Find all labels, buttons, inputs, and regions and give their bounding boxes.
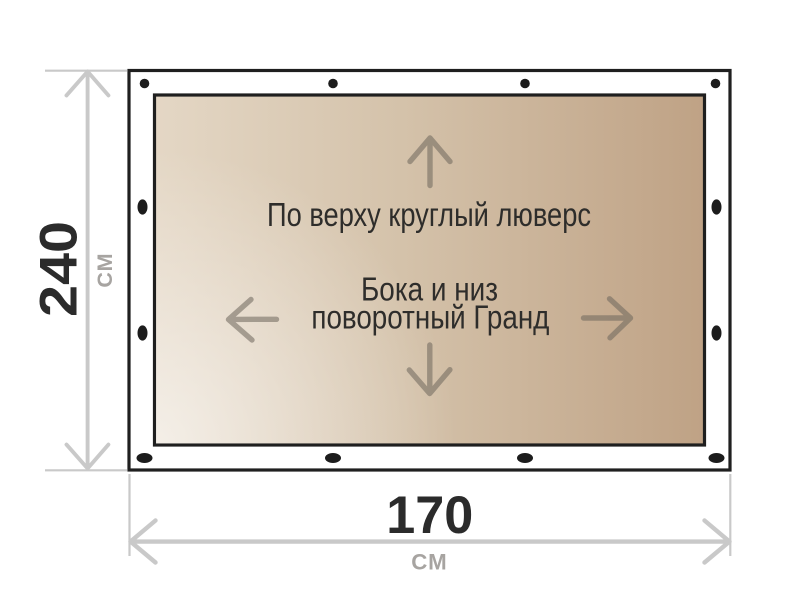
svg-text:170: 170 [386, 486, 473, 545]
svg-text:см: см [411, 550, 447, 575]
svg-text:240: 240 [30, 221, 89, 317]
svg-text:поворотный Гранд: поворотный Гранд [311, 299, 549, 336]
svg-text:см: см [93, 252, 117, 287]
svg-text:По верху круглый люверс: По верху круглый люверс [267, 196, 591, 233]
